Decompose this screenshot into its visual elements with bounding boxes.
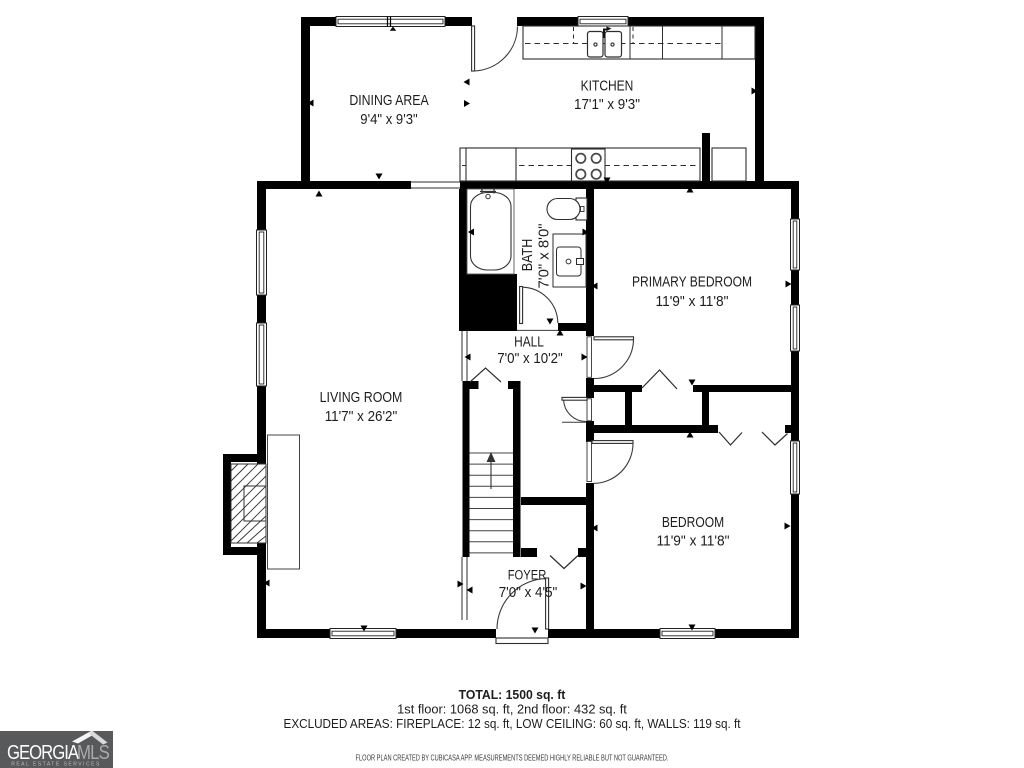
svg-text:EXCLUDED AREAS: FIREPLACE: 12: EXCLUDED AREAS: FIREPLACE: 12 sq. ft, LO…: [284, 716, 741, 731]
svg-text:7'0" x 10'2": 7'0" x 10'2": [497, 350, 563, 367]
svg-text:BATH: BATH: [519, 239, 536, 272]
svg-text:HALL: HALL: [514, 334, 544, 351]
svg-text:REAL ESTATE SERVICES: REAL ESTATE SERVICES: [11, 762, 101, 768]
svg-text:11'9" x 11'8": 11'9" x 11'8": [657, 533, 730, 550]
svg-text:DINING AREA: DINING AREA: [349, 92, 428, 109]
svg-text:9'4" x 9'3": 9'4" x 9'3": [360, 111, 417, 128]
svg-text:11'7" x 26'2": 11'7" x 26'2": [325, 408, 398, 425]
svg-text:7'0" x 4'5": 7'0" x 4'5": [499, 584, 558, 601]
svg-text:FLOOR PLAN CREATED BY CUBICASA: FLOOR PLAN CREATED BY CUBICASA APP. MEAS…: [356, 754, 669, 763]
svg-text:11'9" x 11'8": 11'9" x 11'8": [656, 293, 729, 310]
svg-text:1st floor: 1068 sq. ft, 2nd fl: 1st floor: 1068 sq. ft, 2nd floor: 432 s…: [397, 701, 627, 716]
svg-text:7'0" x 8'0": 7'0" x 8'0": [536, 223, 553, 288]
svg-text:BEDROOM: BEDROOM: [662, 514, 724, 531]
svg-text:LIVING ROOM: LIVING ROOM: [320, 389, 403, 406]
svg-text:FOYER: FOYER: [508, 568, 547, 583]
svg-text:TOTAL: 1500 sq. ft: TOTAL: 1500 sq. ft: [459, 687, 566, 702]
svg-text:17'1" x 9'3": 17'1" x 9'3": [574, 96, 640, 113]
svg-text:KITCHEN: KITCHEN: [581, 78, 634, 95]
svg-text:PRIMARY BEDROOM: PRIMARY BEDROOM: [632, 274, 752, 291]
